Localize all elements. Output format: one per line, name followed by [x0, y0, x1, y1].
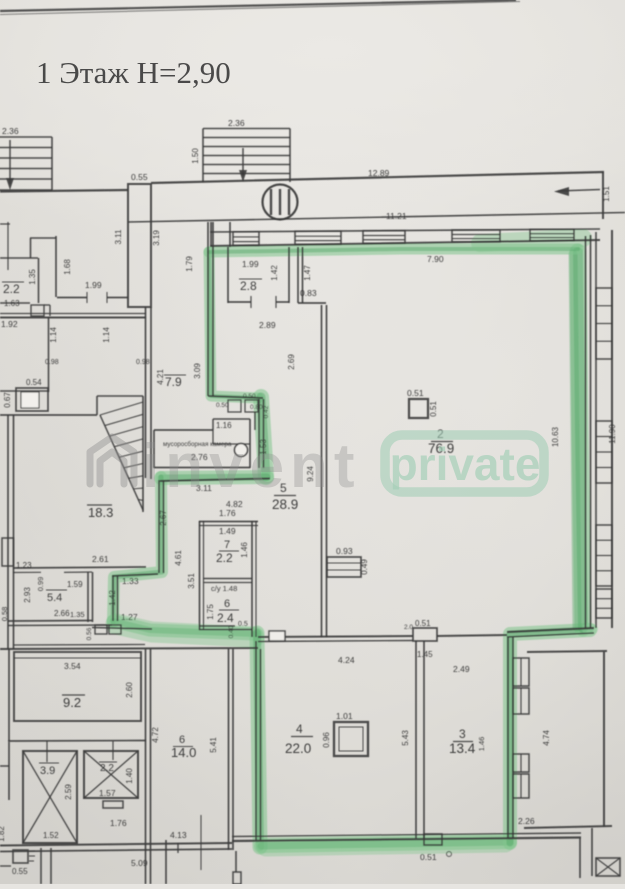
svg-text:5.41: 5.41 — [209, 737, 218, 753]
svg-text:2.36: 2.36 — [2, 126, 19, 136]
svg-text:2.49: 2.49 — [453, 664, 470, 674]
svg-text:9.2: 9.2 — [63, 695, 81, 710]
svg-text:3.11: 3.11 — [114, 229, 123, 245]
svg-text:3.09: 3.09 — [193, 363, 202, 379]
svg-text:0.51: 0.51 — [415, 619, 431, 628]
svg-text:1.59: 1.59 — [67, 580, 83, 589]
svg-text:2.2: 2.2 — [216, 551, 233, 565]
svg-text:22.0: 22.0 — [285, 741, 311, 756]
svg-text:2.2: 2.2 — [100, 763, 114, 774]
svg-text:0.40: 0.40 — [228, 625, 235, 638]
svg-text:1.79: 1.79 — [185, 256, 194, 272]
svg-text:0.96: 0.96 — [322, 732, 331, 748]
svg-text:2.4: 2.4 — [217, 611, 234, 625]
svg-text:7.9: 7.9 — [165, 375, 182, 389]
svg-text:0.51: 0.51 — [420, 852, 437, 862]
svg-text:1.49: 1.49 — [219, 526, 236, 536]
svg-text:0.50: 0.50 — [243, 393, 256, 400]
svg-text:2.26: 2.26 — [518, 816, 535, 826]
svg-text:4.13: 4.13 — [170, 830, 187, 840]
svg-text:4.72: 4.72 — [151, 727, 160, 743]
svg-text:1.57: 1.57 — [99, 788, 116, 798]
svg-text:0.99: 0.99 — [36, 577, 45, 592]
svg-text:10.63: 10.63 — [551, 426, 560, 447]
svg-text:2.93: 2.93 — [23, 587, 32, 603]
svg-text:12.89: 12.89 — [368, 168, 390, 178]
svg-text:4: 4 — [296, 722, 303, 736]
svg-text:1.63: 1.63 — [4, 299, 20, 308]
svg-text:3: 3 — [459, 727, 466, 741]
svg-text:1.50: 1.50 — [191, 148, 200, 164]
svg-text:2.89: 2.89 — [259, 320, 276, 330]
svg-text:1.76: 1.76 — [110, 818, 127, 828]
svg-text:1.33: 1.33 — [122, 576, 139, 586]
svg-text:18.3: 18.3 — [88, 505, 113, 520]
svg-text:1.35: 1.35 — [28, 269, 37, 285]
svg-text:2.0: 2.0 — [404, 624, 413, 631]
svg-text:invent: invent — [142, 432, 361, 501]
svg-text:1.40: 1.40 — [125, 768, 134, 784]
svg-text:0.5: 0.5 — [238, 621, 248, 628]
svg-text:1.01: 1.01 — [336, 711, 353, 721]
svg-text:14.0: 14.0 — [171, 745, 196, 760]
svg-text:5.43: 5.43 — [401, 730, 410, 746]
svg-text:0.49: 0.49 — [360, 559, 369, 575]
svg-text:с/у 1.48: с/у 1.48 — [211, 584, 237, 593]
svg-text:0.55: 0.55 — [12, 867, 28, 876]
svg-text:3.54: 3.54 — [64, 661, 81, 671]
svg-text:2.36: 2.36 — [228, 118, 245, 128]
svg-text:7: 7 — [224, 539, 230, 551]
svg-text:1.45: 1.45 — [417, 650, 433, 659]
svg-text:0.55: 0.55 — [131, 172, 148, 182]
svg-text:2.2: 2.2 — [3, 282, 20, 296]
svg-text:1.27: 1.27 — [121, 612, 138, 622]
svg-text:1.68: 1.68 — [63, 259, 72, 275]
svg-text:0.50: 0.50 — [216, 402, 229, 409]
svg-text:4.74: 4.74 — [542, 730, 551, 746]
svg-text:1.99: 1.99 — [242, 259, 259, 269]
svg-text:1.51: 1.51 — [602, 186, 611, 202]
svg-text:1.99: 1.99 — [85, 280, 102, 290]
svg-text:1.46: 1.46 — [477, 737, 486, 752]
svg-text:11.21: 11.21 — [386, 211, 407, 221]
svg-text:13.4: 13.4 — [449, 741, 476, 756]
svg-text:1.76: 1.76 — [219, 508, 236, 518]
svg-text:0.54: 0.54 — [26, 378, 42, 387]
svg-text:1.14: 1.14 — [102, 327, 111, 343]
svg-text:4.24: 4.24 — [338, 655, 355, 665]
svg-text:3.51: 3.51 — [187, 573, 196, 589]
svg-text:11.90: 11.90 — [608, 424, 617, 444]
svg-text:1 Этаж Н=2,90: 1 Этаж Н=2,90 — [36, 55, 231, 90]
svg-text:1.75: 1.75 — [206, 604, 215, 620]
svg-text:1.46: 1.46 — [240, 542, 249, 558]
svg-text:1.47: 1.47 — [303, 265, 312, 281]
svg-text:1.23: 1.23 — [16, 561, 32, 570]
svg-text:2.67: 2.67 — [159, 510, 168, 526]
svg-text:1.35: 1.35 — [70, 610, 85, 619]
svg-text:0.98: 0.98 — [136, 359, 150, 366]
svg-text:0.56: 0.56 — [86, 627, 93, 640]
svg-text:0.42: 0.42 — [263, 405, 270, 418]
svg-text:6: 6 — [224, 598, 230, 610]
svg-text:3.19: 3.19 — [152, 230, 161, 246]
svg-text:2.59: 2.59 — [64, 784, 73, 800]
svg-text:1.92: 1.92 — [1, 319, 18, 329]
svg-text:2.61: 2.61 — [92, 554, 109, 564]
svg-text:2.66: 2.66 — [54, 609, 70, 618]
svg-text:3.9: 3.9 — [40, 765, 55, 777]
svg-text:0.51: 0.51 — [407, 388, 424, 398]
svg-text:0.80: 0.80 — [250, 404, 263, 411]
svg-text:2.60: 2.60 — [125, 682, 134, 698]
svg-text:1.52: 1.52 — [43, 831, 59, 840]
svg-text:4.21: 4.21 — [156, 369, 165, 385]
svg-text:0.83: 0.83 — [300, 288, 317, 298]
svg-text:private: private — [390, 438, 541, 490]
svg-text:7.90: 7.90 — [427, 254, 444, 264]
svg-text:0.98: 0.98 — [45, 359, 59, 366]
svg-text:4.61: 4.61 — [174, 550, 183, 566]
svg-text:2.69: 2.69 — [287, 354, 296, 370]
svg-text:0.67: 0.67 — [3, 392, 12, 408]
svg-text:1.14: 1.14 — [49, 327, 58, 343]
svg-text:1.42: 1.42 — [270, 265, 279, 281]
svg-text:5.4: 5.4 — [47, 592, 62, 604]
svg-text:2.8: 2.8 — [240, 279, 257, 293]
svg-text:0.93: 0.93 — [336, 546, 353, 556]
svg-text:0.58: 0.58 — [0, 607, 9, 622]
svg-text:1.82: 1.82 — [0, 826, 6, 842]
svg-text:0.51: 0.51 — [429, 401, 438, 417]
svg-text:1.16: 1.16 — [216, 421, 232, 430]
